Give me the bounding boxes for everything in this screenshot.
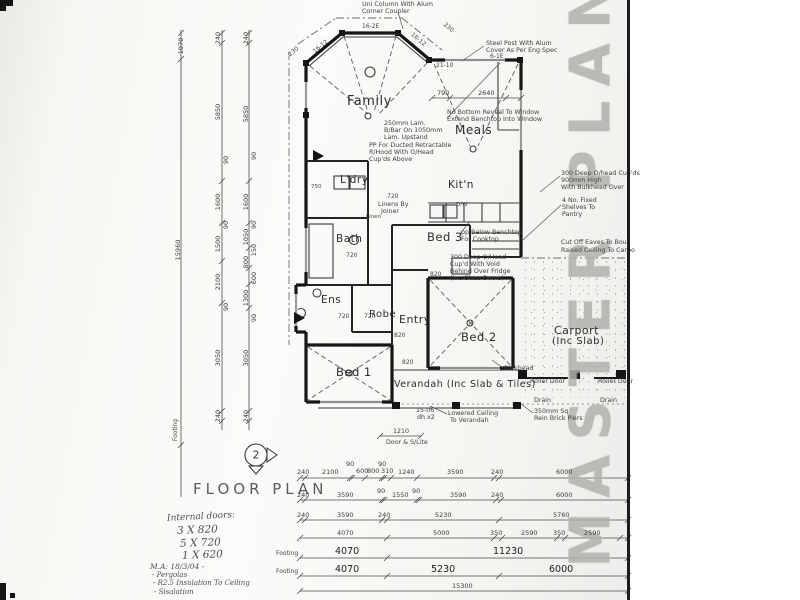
section-marker bbox=[294, 312, 305, 324]
label-dim: 90 bbox=[223, 303, 230, 311]
verandah-pier bbox=[452, 402, 460, 409]
label-dim: 6000 bbox=[556, 492, 573, 499]
scan-corner-mark bbox=[0, 583, 6, 600]
room-kitchen: Kit'n bbox=[448, 180, 474, 191]
label-dim: 90 bbox=[251, 221, 258, 229]
label-tag: 720 bbox=[346, 253, 357, 259]
label-note: Rein Brick Piers bbox=[534, 416, 583, 422]
room-meals: Meals bbox=[455, 124, 492, 136]
label-dim: 1240 bbox=[398, 469, 415, 476]
corner-post bbox=[303, 60, 309, 66]
handwritten-door-spec: 3 X 820 bbox=[177, 523, 218, 536]
label-note: Extend Benchtop Into Window bbox=[447, 117, 542, 123]
label-dim: 240 bbox=[297, 512, 309, 519]
label-dim: 240 bbox=[243, 32, 250, 44]
label-dim: 240 bbox=[378, 512, 390, 519]
label-dim: 240 bbox=[243, 410, 250, 422]
label-dim: 350 bbox=[553, 530, 565, 537]
label-dim: 4070 bbox=[337, 530, 354, 537]
label-note: Roller Door bbox=[530, 379, 565, 385]
label-dim: 240 bbox=[491, 469, 503, 476]
label-dim: 240 bbox=[297, 469, 309, 476]
label-dim: 90 bbox=[346, 461, 354, 468]
label-note: (Inc Glass Doors) bbox=[450, 276, 504, 282]
label-dim: 5230 bbox=[435, 512, 452, 519]
corner-post bbox=[517, 57, 523, 63]
label-dimbig: 5230 bbox=[431, 565, 455, 575]
room-laundry: L'dry bbox=[340, 175, 368, 186]
label-tag: D/W bbox=[456, 203, 468, 209]
label-dim: 90 bbox=[223, 156, 230, 164]
floor-plan-drawing bbox=[0, 0, 800, 600]
label-note: Bulkhead bbox=[504, 366, 533, 372]
room-entry: Entry bbox=[399, 314, 431, 325]
label-dim: 3590 bbox=[450, 492, 467, 499]
label-dim: 90 bbox=[412, 488, 420, 495]
label-dim: 1050 bbox=[243, 229, 250, 246]
label-dim: 240 bbox=[215, 32, 222, 44]
room-verandah: Verandah (Inc Slab & Tiles) bbox=[394, 380, 536, 390]
handwritten-memo-line: M.A: 18/3/04 - bbox=[150, 562, 204, 571]
label-tag: 820 bbox=[430, 272, 441, 278]
label-note: 1210 bbox=[393, 429, 409, 435]
label-dimbig: 4070 bbox=[335, 547, 359, 557]
label-dim: 240 bbox=[491, 492, 503, 499]
room-bed2: Bed 2 bbox=[461, 332, 497, 344]
handwritten-memo-line: - Sisalation bbox=[154, 588, 194, 596]
room-bed1: Bed 1 bbox=[336, 367, 372, 379]
label-tag: Linen bbox=[366, 215, 381, 221]
label-note: Cut Off Eaves To Boun bbox=[561, 240, 631, 246]
corner-post bbox=[426, 57, 432, 63]
leader-line bbox=[521, 404, 533, 413]
label-dim: 240 bbox=[215, 410, 222, 422]
label-dim: 15960 bbox=[175, 240, 182, 261]
label-tag: 6-1E bbox=[490, 54, 504, 60]
corner-post bbox=[339, 30, 345, 36]
label-dim: 2100 bbox=[215, 274, 222, 291]
label-dim: 310 bbox=[381, 468, 393, 475]
verandah-pier bbox=[392, 402, 400, 409]
handwritten-memo-line: - R2.5 Insulation To Ceiling bbox=[153, 579, 250, 587]
label-tag: Footing bbox=[173, 419, 179, 441]
corner-post bbox=[303, 112, 309, 118]
label-dim: 1300 bbox=[243, 290, 250, 307]
bathtub bbox=[309, 224, 333, 278]
label-tag: Footing bbox=[276, 551, 298, 557]
label-dim: 150 bbox=[251, 244, 258, 256]
eaves-line bbox=[298, 18, 336, 44]
section-arrow bbox=[267, 448, 277, 462]
leader-line bbox=[523, 205, 561, 240]
handwritten-door-spec: 1 X 620 bbox=[182, 548, 223, 561]
label-dimbig: 4070 bbox=[335, 565, 359, 575]
wc-bath bbox=[313, 289, 321, 297]
label-note: Corner Coupler bbox=[362, 9, 410, 15]
corner-post bbox=[395, 30, 401, 36]
room-ensuite: Ens bbox=[321, 295, 341, 306]
label-dim: 3050 bbox=[243, 350, 250, 367]
label-tag: 21-10 bbox=[436, 63, 453, 69]
label-dim: 15300 bbox=[452, 583, 473, 590]
label-note: For Cooktop bbox=[461, 237, 499, 243]
label-dimbig: 11230 bbox=[493, 547, 523, 557]
ceiling-point bbox=[470, 146, 476, 152]
label-dim: 2640 bbox=[478, 90, 495, 97]
sheet-symbol: 2 bbox=[253, 450, 260, 461]
room-family: Family bbox=[347, 95, 392, 108]
verandah-pier bbox=[513, 402, 521, 409]
handwritten-memo-line: - Pergolas bbox=[152, 571, 187, 579]
ceiling-point bbox=[365, 67, 375, 77]
label-dim: 2100 bbox=[322, 469, 339, 476]
label-dim: 90 bbox=[377, 488, 385, 495]
label-dim: 5850 bbox=[243, 106, 250, 123]
label-dim: 5000 bbox=[433, 530, 450, 537]
label-tag: Footing bbox=[276, 569, 298, 575]
label-tag: 720 bbox=[387, 194, 398, 200]
label-dim: 1500 bbox=[215, 236, 222, 253]
scan-corner-mark bbox=[10, 593, 15, 598]
label-note: dh x2 bbox=[417, 415, 435, 421]
label-dim: 2590 bbox=[521, 530, 538, 537]
label-tag: 720 bbox=[364, 314, 375, 320]
label-dim: 1600 bbox=[215, 194, 222, 211]
label-dim: 5760 bbox=[553, 512, 570, 519]
room-bath: Bath bbox=[336, 234, 362, 245]
label-dim: 5850 bbox=[215, 104, 222, 121]
label-dim: 800 bbox=[367, 468, 379, 475]
label-note: To Verandah bbox=[450, 418, 489, 424]
section-arrow bbox=[249, 466, 263, 474]
label-note: Drain bbox=[534, 398, 551, 404]
label-dim: 90 bbox=[251, 314, 258, 322]
label-dim: 1600 bbox=[243, 194, 250, 211]
label-dim: 90 bbox=[251, 152, 258, 160]
label-tag: 820 bbox=[402, 360, 413, 366]
label-note: Lam. Upstand bbox=[384, 135, 428, 141]
label-dim: 90 bbox=[223, 221, 230, 229]
label-dim: 3590 bbox=[447, 469, 464, 476]
room-carport-sub: (Inc Slab) bbox=[552, 337, 604, 347]
leader-line bbox=[540, 176, 560, 192]
label-tag: 820 bbox=[394, 333, 405, 339]
label-dim: 6000 bbox=[556, 469, 573, 476]
label-note: Cup'ds Above bbox=[369, 157, 412, 163]
label-note: Pantry bbox=[562, 212, 582, 218]
room-bed3: Bed 3 bbox=[427, 232, 463, 244]
label-tag: 750 bbox=[311, 185, 322, 191]
label-note: Door & S/Lite bbox=[386, 440, 428, 446]
label-dim: 1550 bbox=[392, 492, 409, 499]
label-dim: 1070 bbox=[178, 38, 185, 55]
master-plan-stamp: MASTER PLAN bbox=[559, 0, 624, 568]
label-dim: 3590 bbox=[337, 512, 354, 519]
label-note: With Bulkhead Over bbox=[561, 185, 624, 191]
label-tag: 720 bbox=[338, 314, 349, 320]
label-dim: 240 bbox=[297, 492, 309, 499]
label-tag: 16-2E bbox=[362, 24, 379, 30]
label-dim: 3590 bbox=[337, 492, 354, 499]
label-dim: 790 bbox=[437, 90, 449, 97]
label-dim: 800 bbox=[243, 256, 250, 268]
label-note: Joiner bbox=[381, 209, 399, 215]
label-dim: 600 bbox=[251, 272, 258, 284]
label-note: Raised Ceiling To Carpo bbox=[561, 248, 635, 254]
kitchen-sink bbox=[430, 205, 443, 218]
scan-corner-mark bbox=[0, 6, 6, 11]
label-dim: 2590 bbox=[584, 530, 601, 537]
scanned-floor-plan-page: { "sheet": { "stamp": "MASTER PLAN", "ti… bbox=[0, 0, 800, 600]
label-note: Drain bbox=[600, 398, 617, 404]
label-dim: 3050 bbox=[215, 350, 222, 367]
label-dimbig: 6000 bbox=[549, 565, 573, 575]
label-dim: 350 bbox=[490, 530, 502, 537]
room-carport: Carport bbox=[554, 325, 599, 336]
scan-edge-line bbox=[627, 0, 630, 600]
